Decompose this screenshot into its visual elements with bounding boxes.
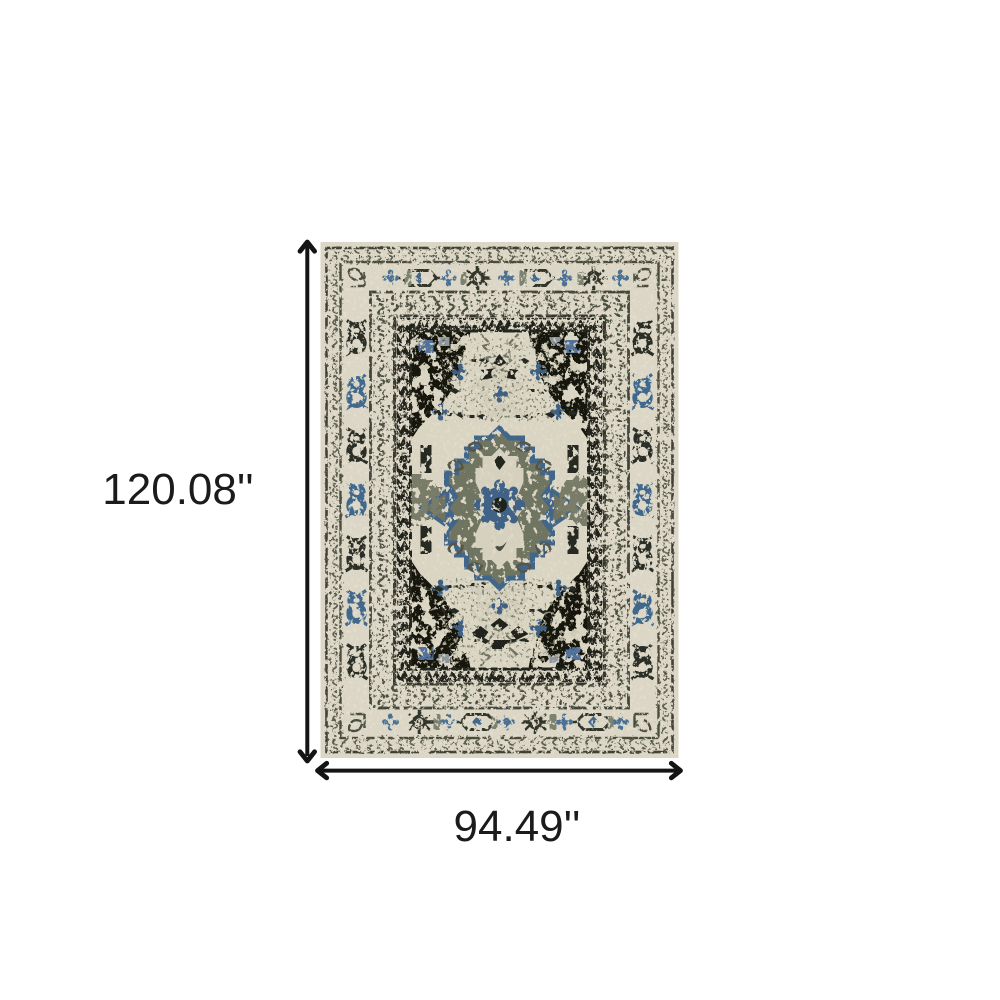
svg-text:120.08'': 120.08'' (102, 465, 253, 514)
svg-text:94.49'': 94.49'' (454, 802, 581, 851)
